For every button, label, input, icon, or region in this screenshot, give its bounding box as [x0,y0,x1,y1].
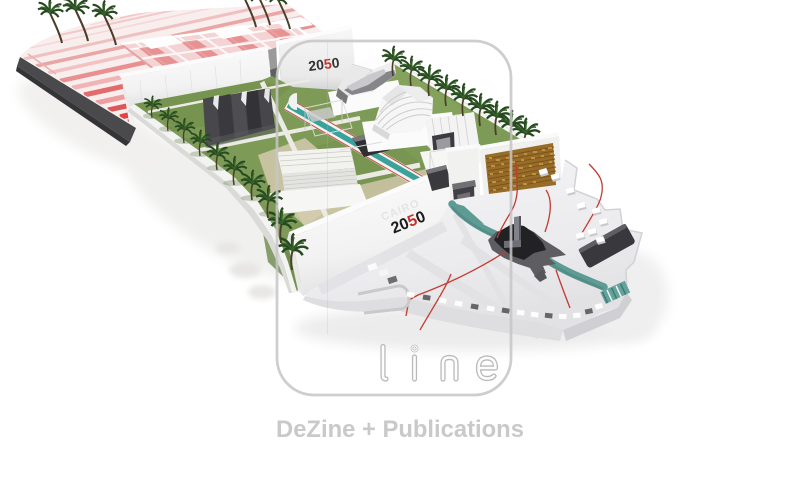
svg-text:DeZine + Publications: DeZine + Publications [276,416,524,443]
